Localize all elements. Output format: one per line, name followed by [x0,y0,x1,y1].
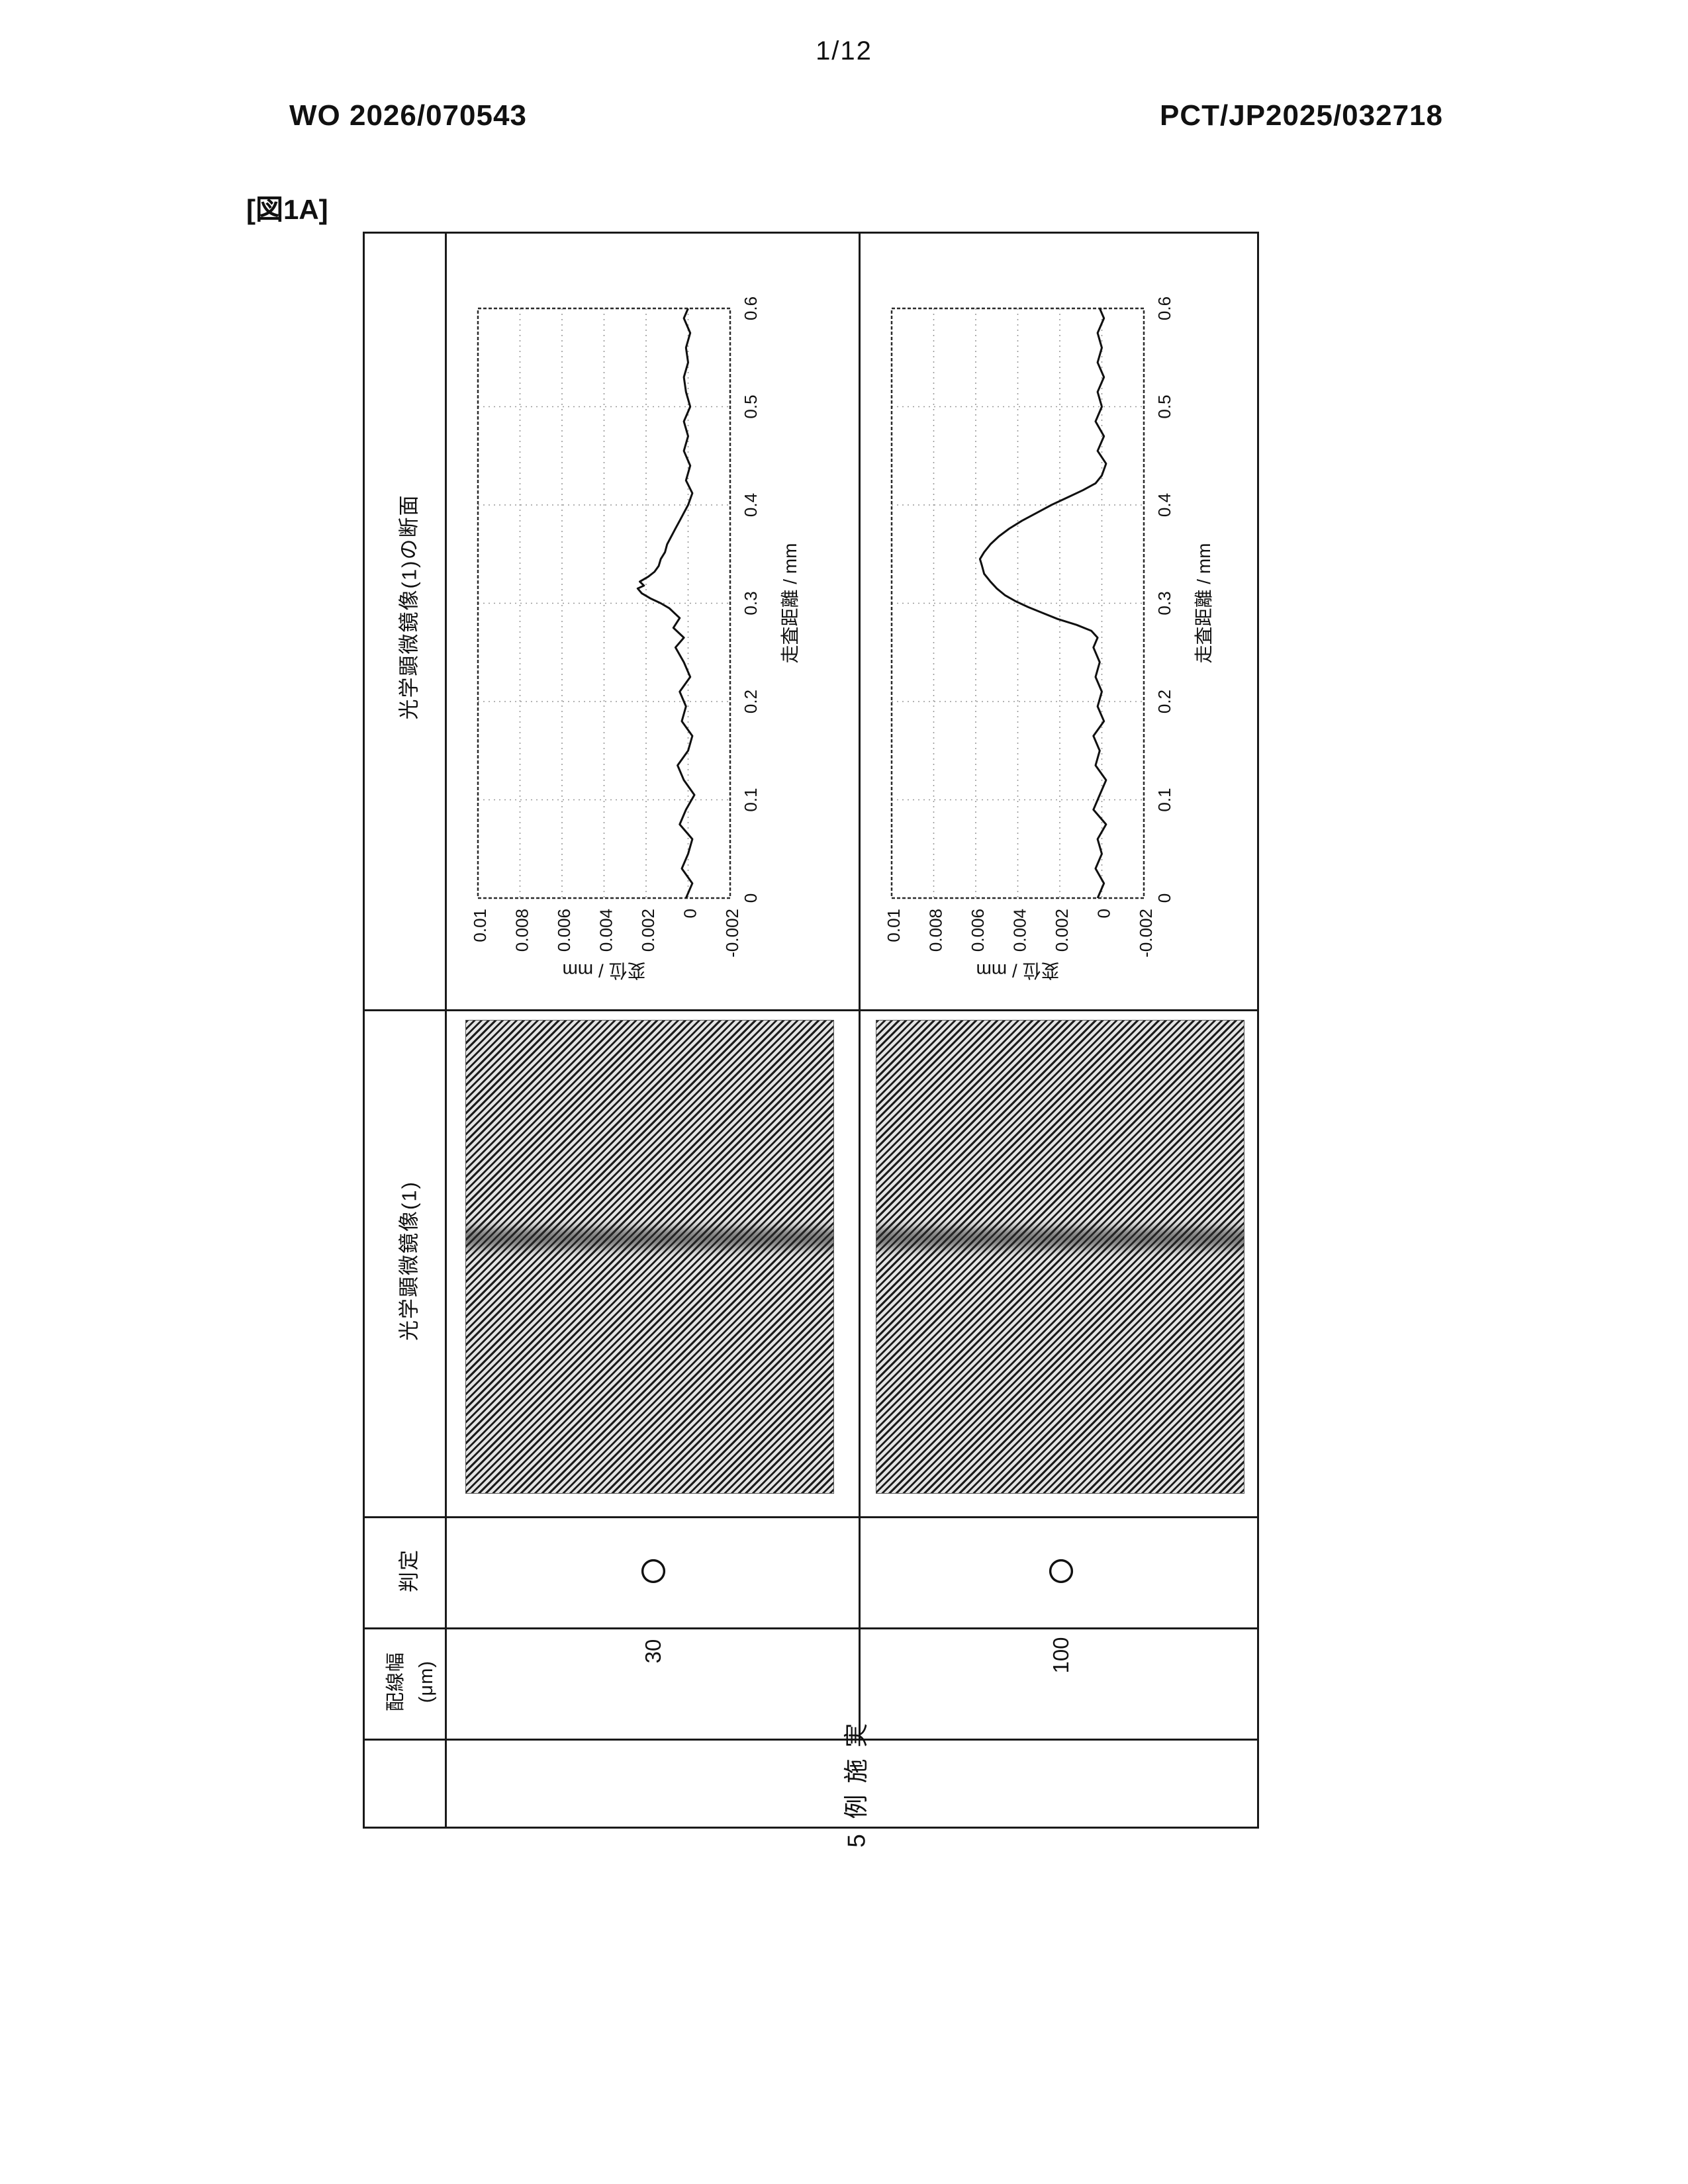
profile-trace [637,308,694,898]
table-divider-judgment-linewidth [365,1627,1257,1629]
table-divider-charts-images [365,1009,1257,1011]
distance-tick-label: 0.6 [741,296,761,320]
publication-number: WO 2026/070543 [289,99,527,132]
value-tick-label: 0 [1094,909,1114,918]
line-width-value-100: 100 [1049,1637,1074,1673]
judgment-mark-30um: ○ [637,1543,670,1597]
table-divider-linewidth-example [365,1739,1257,1741]
distance-tick-label: 0.4 [741,493,761,517]
micrograph-image-30um [465,1020,834,1494]
cross-section-chart-30um: 0.010.0080.0060.0040.0020-0.00200.10.20.… [447,234,859,1009]
figure-1a-table: 光学顕微鏡像(1)の断面 光学顕微鏡像(1) 判定 配線幅 (μm) 0.010… [363,232,1259,1829]
distance-tick-label: 0.3 [741,591,761,615]
value-tick-label: 0.008 [926,909,946,952]
value-tick-label: 0.002 [638,909,658,952]
distance-tick-label: 0 [741,893,761,903]
column-header-judgment: 判定 [393,1549,422,1592]
figure-label: [図1A] [246,187,328,228]
micrograph-image-100um [876,1020,1244,1494]
value-axis-title: 変位 / mm [563,960,646,981]
distance-tick-label: 0.1 [741,788,761,811]
distance-tick-label: 0.1 [1154,788,1174,811]
column-header-micrograph: 光学顕微鏡像(1) [393,1181,422,1341]
value-tick-label: 0 [680,909,700,918]
wire-line-band [876,1228,1244,1248]
distance-tick-label: 0.5 [741,394,761,418]
judgment-mark-100um: ○ [1045,1543,1078,1597]
column-header-line-width: 配線幅 (μm) [381,1652,442,1711]
value-tick-label: 0.002 [1052,909,1072,952]
distance-axis-title: 走査距離 / mm [1194,543,1214,664]
column-header-cross-section: 光学顕微鏡像(1)の断面 [393,494,422,720]
value-tick-label: -0.002 [1136,909,1156,958]
value-tick-label: 0.004 [596,909,616,952]
application-number: PCT/JP2025/032718 [1160,99,1443,132]
distance-tick-label: 0.2 [1154,690,1174,713]
example-row-header: 実施例5 [843,1720,882,1855]
value-axis-title: 変位 / mm [976,960,1060,981]
cross-section-chart-100um: 0.010.0080.0060.0040.0020-0.00200.10.20.… [861,234,1257,1009]
table-divider-images-judgment [365,1516,1257,1518]
distance-axis-title: 走査距離 / mm [780,543,800,664]
value-tick-label: 0.01 [470,909,490,942]
distance-tick-label: 0 [1154,893,1174,903]
distance-tick-label: 0.6 [1154,296,1174,320]
value-tick-label: 0.006 [554,909,574,952]
value-tick-label: -0.002 [722,909,742,958]
page-number: 1/12 [0,36,1688,66]
value-tick-label: 0.006 [968,909,988,952]
distance-tick-label: 0.4 [1154,493,1174,517]
distance-tick-label: 0.2 [741,690,761,713]
value-tick-label: 0.008 [512,909,532,952]
distance-tick-label: 0.5 [1154,394,1174,418]
line-width-value-30: 30 [641,1639,666,1664]
wire-line-band [465,1228,834,1248]
line-width-label: 配線幅 [381,1652,411,1711]
distance-tick-label: 0.3 [1154,591,1174,615]
value-tick-label: 0.01 [884,909,904,942]
value-tick-label: 0.004 [1010,909,1030,952]
line-width-unit: (μm) [411,1652,442,1711]
